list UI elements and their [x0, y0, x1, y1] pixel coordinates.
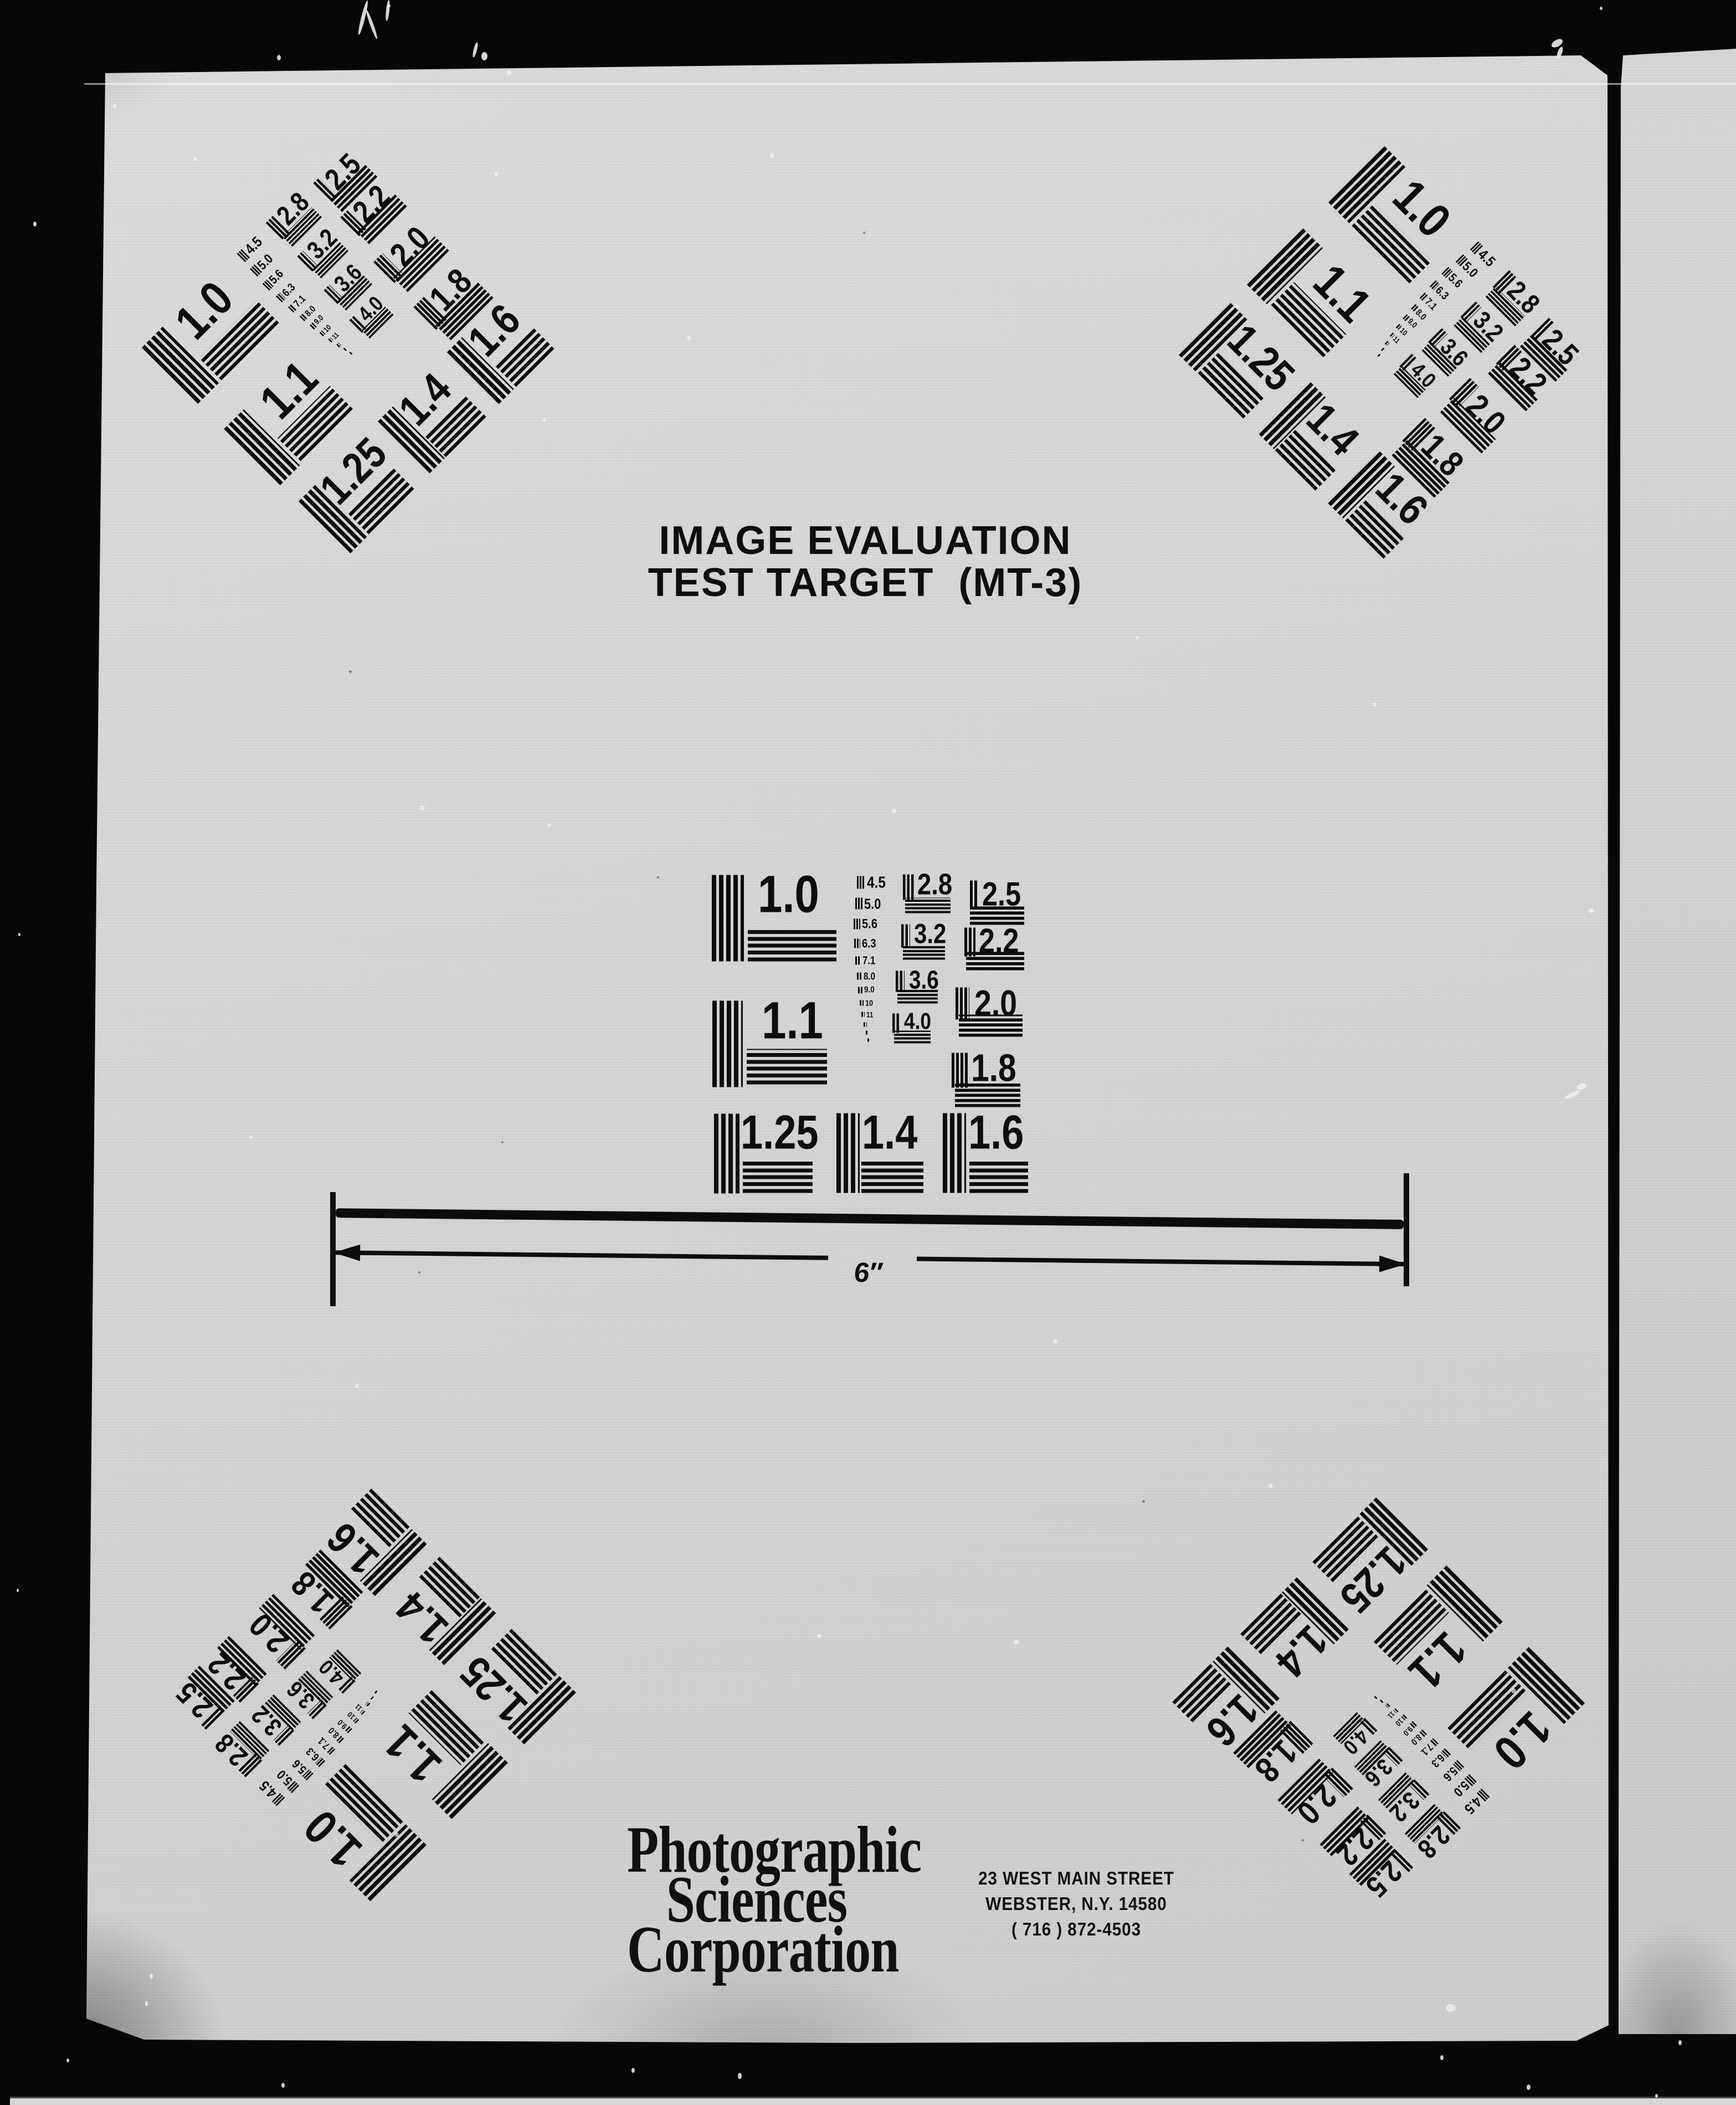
- dust-speck: [249, 1136, 253, 1139]
- dust-speck: [420, 805, 425, 810]
- fine-resolution-mark: [350, 351, 353, 355]
- fine-resolution-label: 11: [866, 1011, 873, 1019]
- resolution-value-label: 4.0: [904, 1010, 931, 1033]
- fine-resolution-mark: [855, 957, 861, 965]
- dust-speck: [365, 9, 379, 40]
- dust-speck: [631, 2068, 635, 2073]
- fine-resolution-label: 6.3: [862, 938, 876, 950]
- fine-resolution-mark: [369, 1696, 374, 1700]
- fine-resolution-mark: [365, 1702, 370, 1707]
- scanned-microfilm-frame: IMAGE EVALUATION TEST TARGET (MT-3) 1.01…: [0, 0, 1736, 2105]
- dust-speck: [657, 876, 659, 879]
- dust-speck: [281, 2083, 285, 2088]
- dust-speck: [817, 1634, 821, 1638]
- fine-resolution-mark: [855, 898, 862, 910]
- dust-speck: [892, 809, 896, 813]
- dust-speck: [349, 670, 352, 673]
- fine-resolution-mark: [867, 1039, 870, 1042]
- dust-speck: [1655, 2094, 1658, 2098]
- dust-speck: [1373, 702, 1377, 706]
- dust-speck: [501, 1141, 504, 1143]
- ruler-reference-bar: [336, 1208, 1404, 1229]
- dust-speck: [1136, 636, 1139, 639]
- dust-speck: [1268, 1483, 1273, 1488]
- fine-resolution-mark: [866, 1031, 869, 1035]
- resolution-value-label: 1.4: [862, 1109, 917, 1157]
- fine-resolution-mark: [360, 1709, 366, 1715]
- dust-speck: [18, 933, 20, 936]
- fine-resolution-mark: [857, 973, 862, 980]
- fine-resolution-mark: [1379, 1700, 1384, 1704]
- dust-speck: [1440, 2055, 1444, 2060]
- fine-resolution-mark: [343, 347, 347, 351]
- resolution-target-center: 1.01.11.251.41.62.52.22.01.82.83.23.64.0…: [694, 854, 1038, 1195]
- fine-resolution-mark: [1384, 341, 1389, 346]
- dust-speck: [1678, 2040, 1682, 2045]
- fine-resolution-mark: [1385, 1703, 1390, 1708]
- bar-group-vertical: [901, 925, 910, 948]
- fine-resolution-label: 7.1: [862, 956, 875, 967]
- fine-resolution-mark: [1377, 354, 1381, 358]
- title-line-2: TEST TARGET (MT-3): [599, 562, 1131, 604]
- adjacent-page-edge: [1619, 49, 1736, 2034]
- bar-group-vertical: [896, 971, 905, 992]
- dust-speck: [770, 153, 774, 158]
- fine-resolution-mark: [374, 1690, 378, 1694]
- arrow-segment-right: [917, 1256, 1404, 1266]
- dust-speck: [547, 823, 551, 827]
- fine-resolution-mark: [864, 1023, 867, 1027]
- dust-speck: [1235, 305, 1239, 308]
- fine-resolution-label: 9.0: [1406, 317, 1419, 330]
- dust-speck: [355, 1384, 359, 1388]
- bar-group-vertical: [903, 875, 914, 900]
- film-scratch-line: [84, 83, 1736, 85]
- resolution-value-label: 2.2: [979, 925, 1019, 959]
- bar-group-horizontal: [748, 927, 836, 962]
- dust-speck: [687, 336, 691, 340]
- dust-speck: [507, 70, 511, 75]
- resolution-value-label: 2.5: [982, 878, 1021, 911]
- resolution-value-label: 2.8: [917, 870, 952, 900]
- dust-speck: [1142, 1500, 1145, 1503]
- company-line-3: Corporation: [627, 1924, 886, 1974]
- dust-speck: [145, 2001, 148, 2006]
- dust-speck: [150, 1974, 153, 1979]
- dust-speck: [472, 42, 479, 58]
- fine-resolution-label: 10: [865, 999, 873, 1008]
- fine-resolution-label: 9.0: [864, 986, 875, 995]
- dust-speck: [66, 2058, 69, 2062]
- dust-speck: [863, 232, 865, 234]
- dust-speck: [194, 157, 197, 161]
- dust-speck: [495, 172, 498, 177]
- fine-resolution-mark: [854, 919, 860, 930]
- fine-resolution-label: 5.0: [864, 897, 881, 911]
- dust-speck: [1446, 2004, 1456, 2012]
- dust-speck: [1302, 1839, 1304, 1841]
- fine-resolution-mark: [860, 1000, 864, 1006]
- dust-speck: [738, 2073, 742, 2079]
- fine-resolution-mark: [858, 987, 862, 994]
- dust-speck: [418, 1271, 420, 1274]
- address-line-2: WEBSTER, N.Y. 14580: [970, 1891, 1182, 1917]
- dust-speck: [188, 1684, 191, 1687]
- six-inch-scale-ruler: 6″: [330, 1169, 1409, 1307]
- dust-speck: [394, 1832, 399, 1837]
- dust-speck: [385, 0, 391, 21]
- fine-resolution-label: 4.5: [867, 875, 886, 891]
- fine-resolution-mark: [1374, 1696, 1378, 1700]
- dust-speck: [1589, 908, 1594, 913]
- company-name: Photographic Sciences Corporation: [627, 1825, 886, 1974]
- bar-group-vertical: [712, 875, 744, 962]
- fine-resolution-mark: [1381, 347, 1385, 352]
- resolution-value-label: 1.6: [968, 1109, 1024, 1157]
- dust-speck: [17, 1589, 19, 1592]
- title-line-1: IMAGE EVALUATION: [599, 520, 1131, 562]
- resolution-value-label: 3.2: [914, 920, 946, 948]
- arrowhead-right-icon: [1379, 1256, 1406, 1273]
- bar-group-vertical: [712, 1001, 743, 1087]
- dust-speck: [277, 55, 281, 60]
- fine-resolution-mark: [353, 1717, 359, 1723]
- dust-speck: [33, 222, 37, 227]
- resolution-value-label: 1.8: [971, 1049, 1016, 1087]
- dust-speck: [481, 52, 487, 60]
- fine-resolution-mark: [336, 342, 341, 347]
- dust-speck: [113, 104, 116, 109]
- dust-speck: [543, 418, 546, 422]
- dust-speck: [1014, 1640, 1019, 1645]
- fine-resolution-label: 5.6: [862, 918, 877, 931]
- fine-resolution-mark: [854, 939, 860, 948]
- dust-speck: [1600, 7, 1603, 10]
- resolution-value-label: 1.0: [758, 869, 819, 921]
- fine-resolution-mark: [861, 1012, 865, 1017]
- arrow-segment-left: [336, 1250, 828, 1260]
- ruler-length-label: 6″: [834, 1256, 903, 1288]
- resolution-value-label: 1.25: [741, 1109, 819, 1157]
- resolution-value-label: 2.0: [974, 985, 1017, 1021]
- address-line-1: 23 WEST MAIN STREET: [970, 1866, 1182, 1891]
- dust-speck: [1054, 1339, 1057, 1343]
- arrowhead-left-icon: [333, 1244, 360, 1261]
- bar-group-vertical: [970, 881, 979, 907]
- address-line-3: ( 716 ) 872-4503: [970, 1917, 1182, 1942]
- company-address: 23 WEST MAIN STREET WEBSTER, N.Y. 14580 …: [970, 1866, 1182, 1942]
- target-title: IMAGE EVALUATION TEST TARGET (MT-3): [599, 520, 1131, 604]
- bar-group-horizontal: [747, 1049, 827, 1085]
- fine-resolution-mark: [857, 876, 865, 889]
- resolution-value-label: 3.6: [909, 967, 939, 993]
- dust-speck: [1527, 2085, 1530, 2090]
- film-edge-line: [10, 2098, 1736, 2105]
- fine-resolution-label: 8.0: [864, 972, 875, 982]
- bar-group-vertical: [892, 1014, 900, 1033]
- resolution-value-label: 1.1: [762, 995, 823, 1048]
- dust-speck: [1511, 1688, 1516, 1693]
